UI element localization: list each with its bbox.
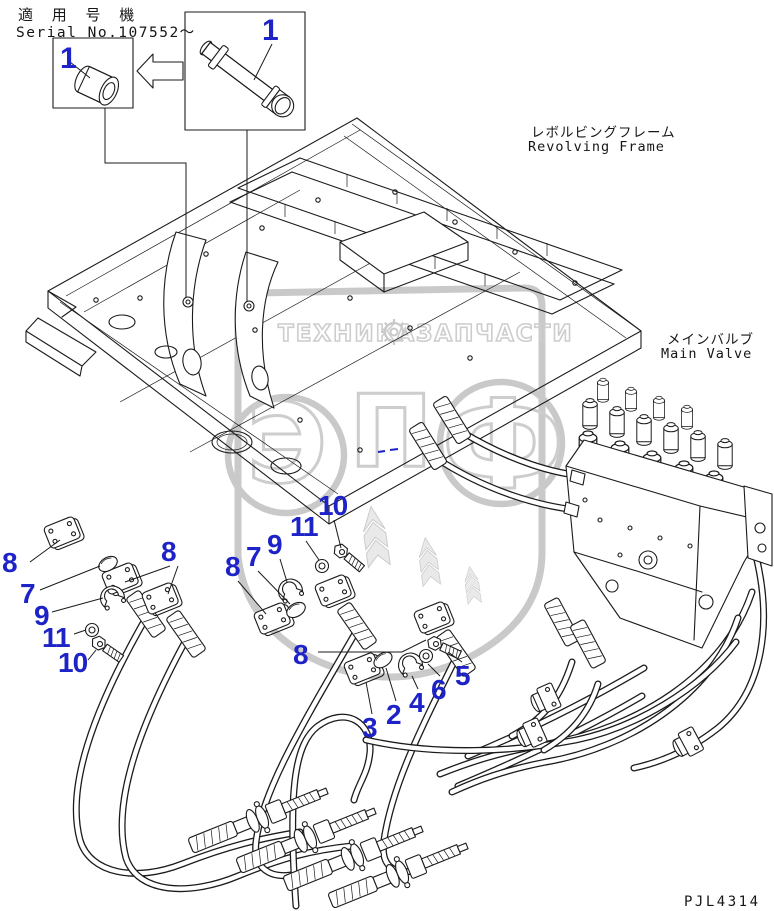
inset-pin-box <box>185 12 305 130</box>
drawing-code: PJL4314 <box>684 894 761 910</box>
callout-7-left: 7 <box>20 580 35 608</box>
watermark-tagline-right: ЗАПЧАСТИ <box>416 321 574 347</box>
revolving-frame-label-en: Revolving Frame <box>528 139 665 155</box>
callout-10-mid: 10 <box>318 492 347 520</box>
callout-5: 5 <box>455 662 470 690</box>
serial-number-label: Serial No.107552〜 <box>16 21 196 42</box>
callout-8-mid: 8 <box>225 553 240 581</box>
callout-10-left: 10 <box>58 649 87 677</box>
main-valve-drawing <box>564 378 772 648</box>
callout-8-left: 8 <box>2 549 17 577</box>
callout-1-bushing: 1 <box>60 44 76 74</box>
callout-1-pin: 1 <box>262 16 278 46</box>
watermark-fir-3 <box>463 566 482 605</box>
callout-4: 4 <box>409 689 424 717</box>
callout-8-lower: 8 <box>293 641 308 669</box>
watermark-fir-2 <box>416 536 440 586</box>
callout-11-mid: 11 <box>290 513 318 541</box>
main-valve-label-en: Main Valve <box>661 346 752 362</box>
watermark-tagline-left: ТЕХНИКА <box>278 321 416 347</box>
callout-3: 3 <box>362 714 377 742</box>
watermark-fir-1 <box>360 505 390 567</box>
inset-arrow-icon <box>137 54 183 88</box>
callout-8-hose-left: 8 <box>161 538 176 566</box>
callout-7-mid: 7 <box>246 543 261 571</box>
main-valve-label-jp: メインバルブ <box>667 328 754 348</box>
callout-2: 2 <box>386 701 401 729</box>
watermark-letter-f: Ф <box>442 374 565 518</box>
revolving-frame-label-jp: レボルビングフレーム <box>531 121 676 141</box>
callout-9-mid: 9 <box>267 531 282 559</box>
parts-diagram-page: Э П Ф ТЕХНИКА ЗАПЧАСТИ <box>0 0 774 911</box>
callout-6: 6 <box>431 676 446 704</box>
